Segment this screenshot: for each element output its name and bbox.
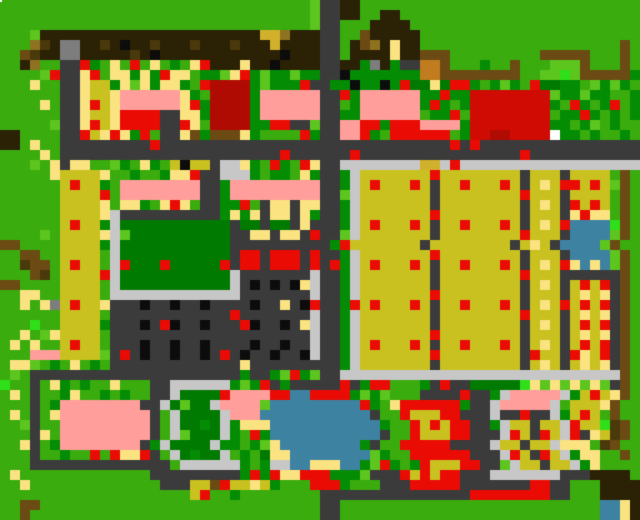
game-map[interactable] (0, 0, 640, 520)
game-map-canvas[interactable] (0, 0, 640, 520)
